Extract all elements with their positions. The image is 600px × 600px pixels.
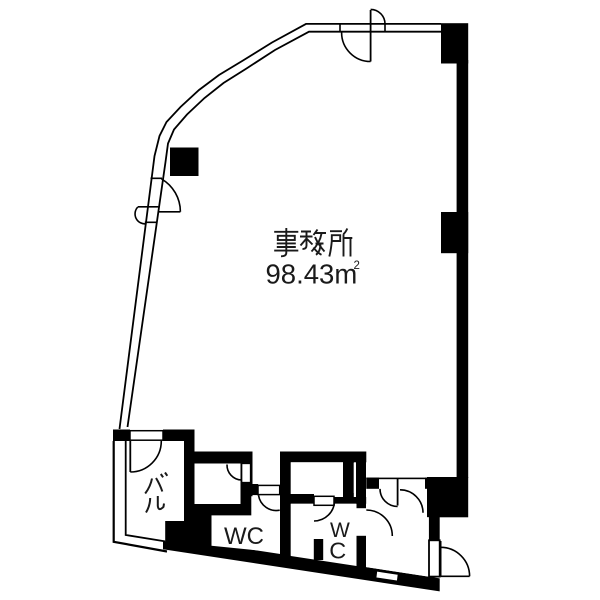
svg-text:WC: WC (224, 523, 264, 550)
svg-text:C: C (329, 538, 346, 564)
svg-text:98.43m: 98.43m (266, 259, 358, 290)
svg-text:2: 2 (354, 260, 360, 272)
